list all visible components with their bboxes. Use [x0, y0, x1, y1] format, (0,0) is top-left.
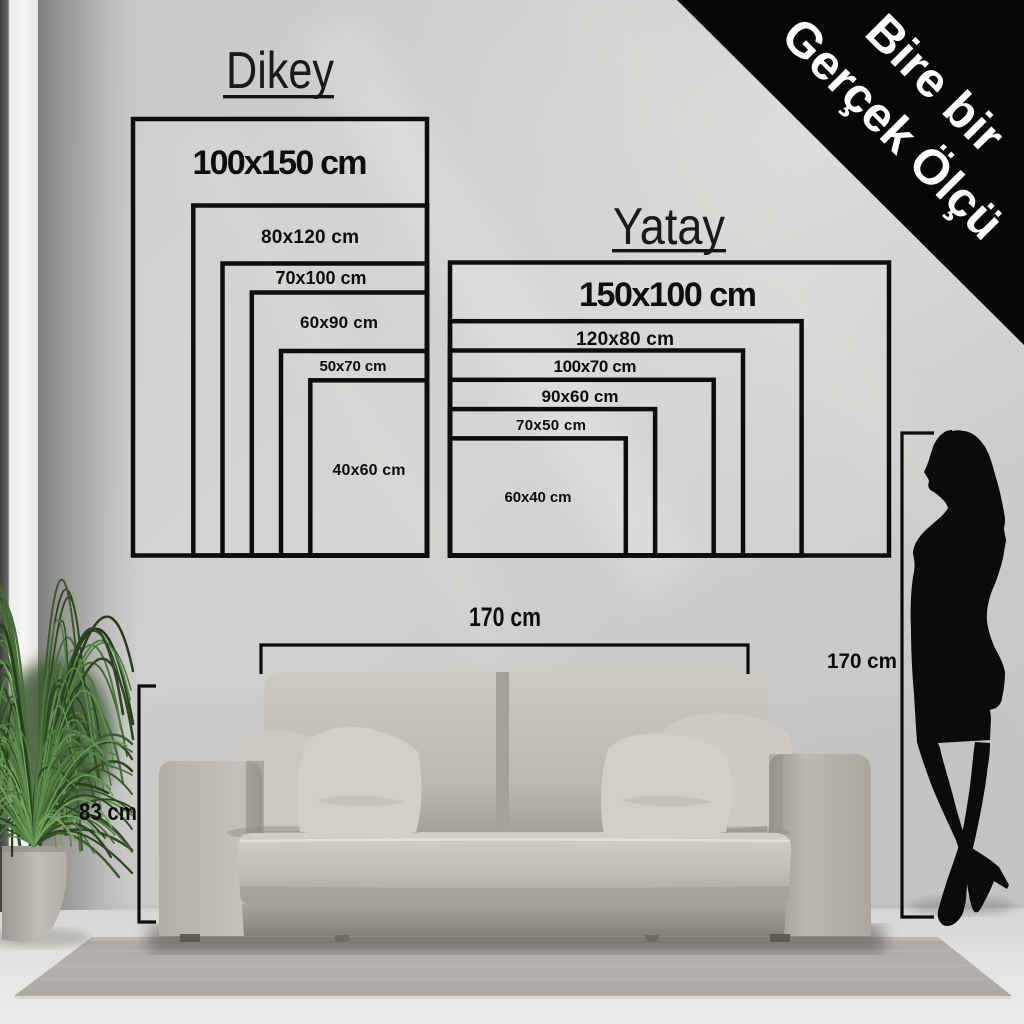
svg-text:90x60 cm: 90x60 cm — [542, 387, 619, 406]
svg-text:70x50 cm: 70x50 cm — [516, 417, 586, 434]
svg-text:40x60 cm: 40x60 cm — [333, 462, 406, 479]
svg-text:60x90 cm: 60x90 cm — [300, 313, 378, 332]
svg-text:70x100 cm: 70x100 cm — [276, 268, 367, 288]
svg-text:80x120 cm: 80x120 cm — [261, 227, 359, 248]
svg-text:120x80 cm: 120x80 cm — [576, 329, 674, 350]
svg-text:60x40 cm: 60x40 cm — [505, 489, 572, 506]
svg-text:83 cm: 83 cm — [79, 799, 137, 826]
svg-text:Yatay: Yatay — [613, 198, 725, 256]
svg-text:100x150 cm: 100x150 cm — [193, 144, 368, 182]
svg-text:170 cm: 170 cm — [469, 602, 541, 632]
svg-text:100x70 cm: 100x70 cm — [554, 357, 637, 376]
svg-text:Dikey: Dikey — [226, 42, 334, 100]
svg-text:150x100 cm: 150x100 cm — [579, 276, 757, 314]
svg-text:170 cm: 170 cm — [827, 650, 897, 673]
svg-text:50x70 cm: 50x70 cm — [320, 358, 387, 375]
